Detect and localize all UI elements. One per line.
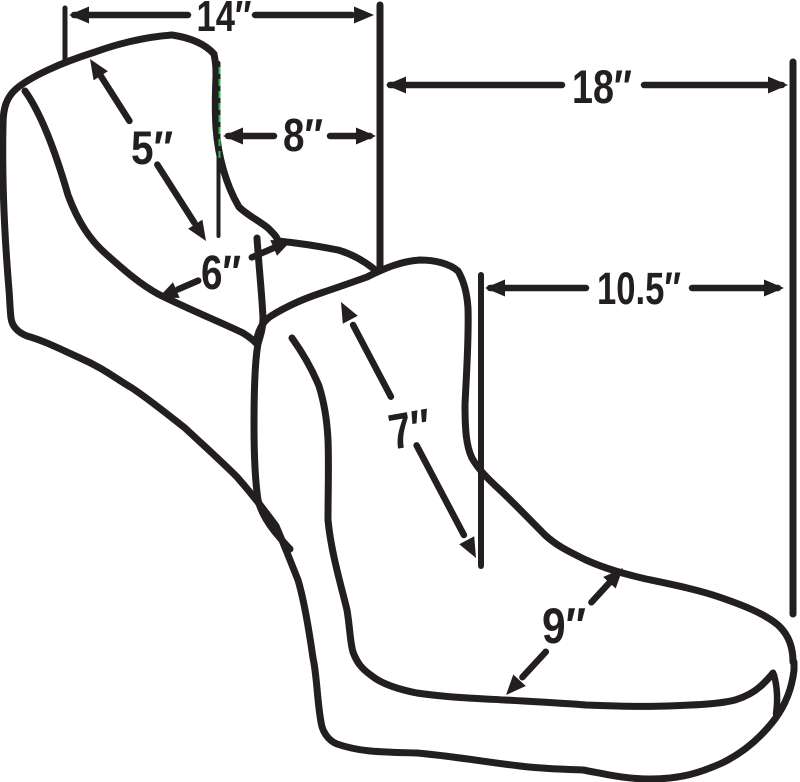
svg-text:6″: 6″ [201, 247, 241, 300]
svg-text:8″: 8″ [283, 109, 323, 161]
svg-text:14″: 14″ [197, 0, 252, 41]
svg-text:9″: 9″ [542, 598, 586, 654]
svg-text:18″: 18″ [572, 60, 632, 113]
svg-text:10.5″: 10.5″ [597, 263, 681, 314]
svg-text:5″: 5″ [131, 121, 173, 174]
svg-text:7″: 7″ [385, 398, 436, 460]
